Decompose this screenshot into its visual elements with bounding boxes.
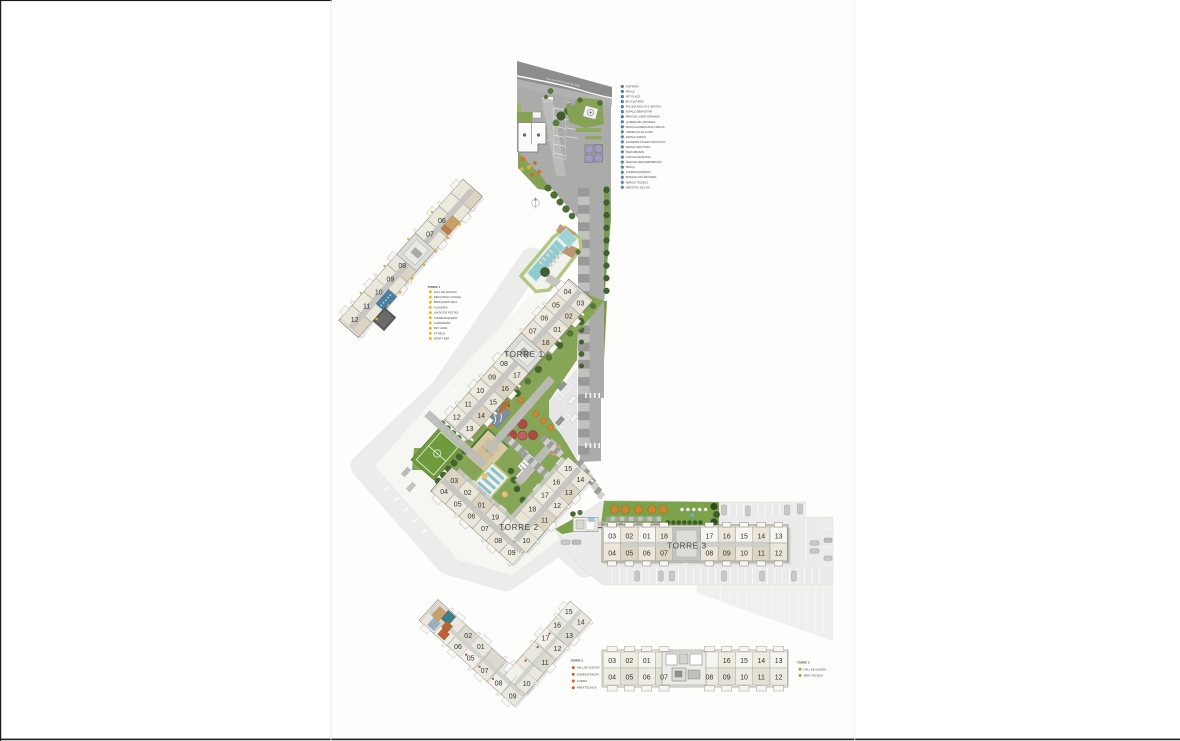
svg-text:09: 09 (723, 551, 731, 558)
svg-text:10: 10 (523, 681, 531, 688)
svg-text:11: 11 (465, 402, 472, 409)
svg-text:17: 17 (542, 636, 550, 643)
svg-text:BOSQUE DAS ÁRVORES: BOSQUE DAS ÁRVORES (626, 175, 657, 179)
svg-text:14: 14 (757, 658, 765, 665)
svg-text:08: 08 (398, 263, 406, 270)
svg-text:DESCANSO LOUNGE: DESCANSO LOUNGE (434, 295, 461, 299)
svg-text:01: 01 (643, 533, 651, 540)
svg-text:17: 17 (706, 533, 714, 540)
svg-text:PRAÇA: PRAÇA (626, 90, 635, 94)
svg-text:11: 11 (541, 660, 548, 667)
svg-text:CHURRASQUEIRAS: CHURRASQUEIRAS (626, 170, 651, 174)
svg-text:09: 09 (387, 277, 395, 284)
svg-text:13: 13 (565, 490, 573, 497)
svg-text:12: 12 (621, 142, 623, 144)
svg-text:TORRE 2: TORRE 2 (499, 523, 539, 532)
svg-text:BICICLETÁRIO: BICICLETÁRIO (626, 100, 644, 104)
svg-text:13: 13 (775, 658, 783, 665)
svg-text:16: 16 (553, 622, 561, 629)
svg-text:TORRE 3: TORRE 3 (667, 541, 707, 550)
svg-text:18: 18 (529, 507, 537, 514)
svg-text:12: 12 (553, 503, 561, 510)
svg-text:06: 06 (643, 551, 651, 558)
svg-text:4: 4 (622, 102, 623, 104)
svg-text:16: 16 (723, 533, 731, 540)
svg-text:11: 11 (758, 675, 765, 682)
svg-text:04: 04 (608, 675, 616, 682)
svg-text:18: 18 (660, 533, 668, 540)
svg-text:08: 08 (494, 538, 502, 545)
svg-text:ACADEMIA: ACADEMIA (434, 305, 448, 309)
svg-text:CHURRASQUEIRA: CHURRASQUEIRA (434, 316, 458, 320)
svg-text:19: 19 (621, 177, 623, 179)
svg-text:18: 18 (542, 340, 550, 347)
svg-text:CANCHA DE BOCHA: CANCHA DE BOCHA (626, 155, 651, 159)
svg-text:15: 15 (740, 658, 748, 665)
svg-text:FITNESS: FITNESS (434, 331, 446, 335)
svg-text:16: 16 (621, 162, 623, 164)
svg-text:HALL DE ACESSO: HALL DE ACESSO (434, 290, 457, 294)
svg-text:TORRE 2: TORRE 2 (571, 659, 584, 663)
svg-text:06: 06 (468, 514, 476, 521)
svg-text:8: 8 (622, 122, 623, 124)
svg-text:16: 16 (553, 479, 561, 486)
svg-text:09: 09 (488, 375, 496, 382)
svg-text:19: 19 (491, 515, 499, 522)
svg-text:11: 11 (621, 137, 623, 139)
svg-text:14: 14 (757, 533, 765, 540)
svg-text:04: 04 (440, 489, 448, 496)
svg-text:17: 17 (621, 167, 623, 169)
svg-text:07: 07 (660, 551, 668, 558)
svg-text:16: 16 (501, 386, 509, 393)
svg-text:10: 10 (375, 290, 383, 297)
svg-text:21: 21 (621, 187, 623, 189)
svg-text:14: 14 (621, 152, 623, 154)
svg-text:05: 05 (552, 302, 560, 309)
svg-text:09: 09 (508, 550, 516, 557)
svg-text:9: 9 (622, 127, 623, 129)
svg-text:CINEMA AO AR LIVRE: CINEMA AO AR LIVRE (626, 130, 653, 134)
svg-text:15: 15 (564, 466, 572, 473)
svg-text:02: 02 (464, 490, 472, 497)
svg-text:PRAÇA: PRAÇA (626, 165, 635, 169)
svg-text:PRAÇA ALAMEDA DAS TÁBUAS: PRAÇA ALAMEDA DAS TÁBUAS (626, 125, 665, 129)
svg-text:PET PLACE: PET PLACE (626, 95, 640, 99)
svg-text:05: 05 (454, 501, 462, 508)
svg-text:02: 02 (464, 633, 472, 640)
svg-text:ESPAÇO MULTIUSO: ESPAÇO MULTIUSO (626, 145, 651, 149)
svg-text:16: 16 (723, 658, 731, 665)
svg-text:09: 09 (509, 693, 517, 700)
svg-text:14: 14 (577, 620, 585, 627)
svg-text:06: 06 (643, 675, 651, 682)
svg-text:13: 13 (775, 533, 783, 540)
svg-text:SPORT BAR: SPORT BAR (434, 337, 449, 341)
svg-text:15: 15 (621, 157, 623, 159)
svg-text:02: 02 (565, 314, 573, 321)
svg-text:10: 10 (522, 538, 530, 545)
svg-text:10: 10 (476, 388, 484, 395)
svg-text:TORRE 4: TORRE 4 (428, 285, 441, 289)
svg-text:PET CARE: PET CARE (434, 326, 448, 330)
svg-text:11: 11 (541, 517, 548, 524)
svg-text:ÁREA DE LAZER GRAMADA: ÁREA DE LAZER GRAMADA (626, 115, 660, 119)
svg-text:05: 05 (626, 551, 634, 558)
svg-text:07: 07 (426, 232, 434, 239)
svg-text:12: 12 (775, 551, 783, 558)
svg-text:07: 07 (481, 526, 489, 533)
svg-text:ESPAÇO BEM-ESTAR: ESPAÇO BEM-ESTAR (626, 110, 652, 114)
svg-text:11: 11 (758, 551, 765, 558)
svg-text:08: 08 (500, 361, 508, 368)
svg-text:QUADRA DE CAPOEIRA: QUADRA DE CAPOEIRA (626, 120, 656, 124)
svg-text:15: 15 (489, 399, 497, 406)
svg-text:LAVANDERIA: LAVANDERIA (434, 321, 451, 325)
svg-text:14: 14 (477, 413, 485, 420)
svg-text:12: 12 (775, 675, 783, 682)
svg-text:18: 18 (621, 172, 623, 174)
svg-text:02: 02 (626, 658, 634, 665)
svg-text:17: 17 (513, 372, 521, 379)
svg-text:04: 04 (564, 289, 572, 296)
svg-text:HALL DE ACESSO: HALL DE ACESSO (577, 666, 600, 670)
svg-text:3: 3 (622, 97, 623, 99)
svg-text:14: 14 (577, 477, 585, 484)
svg-text:06: 06 (454, 644, 462, 651)
svg-text:12: 12 (554, 646, 562, 653)
svg-text:03: 03 (450, 478, 458, 485)
svg-text:03: 03 (577, 301, 585, 308)
svg-text:05: 05 (626, 675, 634, 682)
svg-text:PORTARIA: PORTARIA (626, 85, 639, 89)
svg-text:01: 01 (477, 644, 485, 651)
svg-text:TORRE 1: TORRE 1 (504, 350, 544, 359)
svg-text:09: 09 (723, 675, 731, 682)
svg-text:07: 07 (529, 329, 537, 336)
svg-text:PIER MIRANTE: PIER MIRANTE (626, 150, 645, 154)
svg-text:HALL DE ACESSO: HALL DE ACESSO (804, 667, 827, 671)
svg-text:08: 08 (706, 675, 714, 682)
svg-text:10: 10 (740, 551, 748, 558)
svg-text:6: 6 (622, 112, 623, 114)
svg-text:TORRE 3: TORRE 3 (797, 661, 810, 665)
svg-text:13: 13 (565, 633, 573, 640)
svg-text:02: 02 (626, 533, 634, 540)
svg-text:7: 7 (622, 117, 623, 119)
svg-text:05: 05 (467, 656, 475, 663)
svg-text:17: 17 (541, 492, 549, 499)
svg-text:12: 12 (351, 317, 359, 324)
svg-text:20: 20 (621, 182, 623, 184)
svg-text:13: 13 (466, 426, 474, 433)
svg-text:10: 10 (621, 132, 623, 134)
svg-text:03: 03 (608, 658, 616, 665)
svg-text:1: 1 (622, 86, 623, 88)
svg-text:15: 15 (565, 609, 573, 616)
svg-text:ACADEMIA JOVEM COM ESTILO: ACADEMIA JOVEM COM ESTILO (626, 140, 666, 144)
svg-text:10: 10 (740, 675, 748, 682)
svg-text:08: 08 (495, 681, 503, 688)
svg-text:01: 01 (553, 327, 561, 334)
svg-text:13: 13 (621, 147, 623, 149)
svg-text:08: 08 (706, 551, 714, 558)
svg-text:01: 01 (478, 502, 486, 509)
svg-text:15: 15 (740, 533, 748, 540)
svg-text:LIXEIRA: LIXEIRA (577, 679, 588, 683)
svg-text:04: 04 (608, 551, 616, 558)
svg-text:2: 2 (622, 91, 623, 93)
svg-text:11: 11 (363, 304, 370, 311)
svg-text:BRINQUEDOTECA: BRINQUEDOTECA (434, 300, 458, 304)
svg-text:06: 06 (541, 315, 549, 322)
svg-text:PISCINA ADULTO E INFANTIL: PISCINA ADULTO E INFANTIL (626, 105, 662, 109)
svg-text:ESPAÇO FōRNO: ESPAÇO FōRNO (626, 135, 646, 139)
svg-text:12: 12 (453, 415, 461, 422)
svg-text:03: 03 (608, 533, 616, 540)
svg-text:07: 07 (481, 668, 489, 675)
svg-text:5: 5 (622, 107, 623, 109)
svg-text:01: 01 (643, 658, 651, 665)
svg-text:07: 07 (660, 675, 668, 682)
